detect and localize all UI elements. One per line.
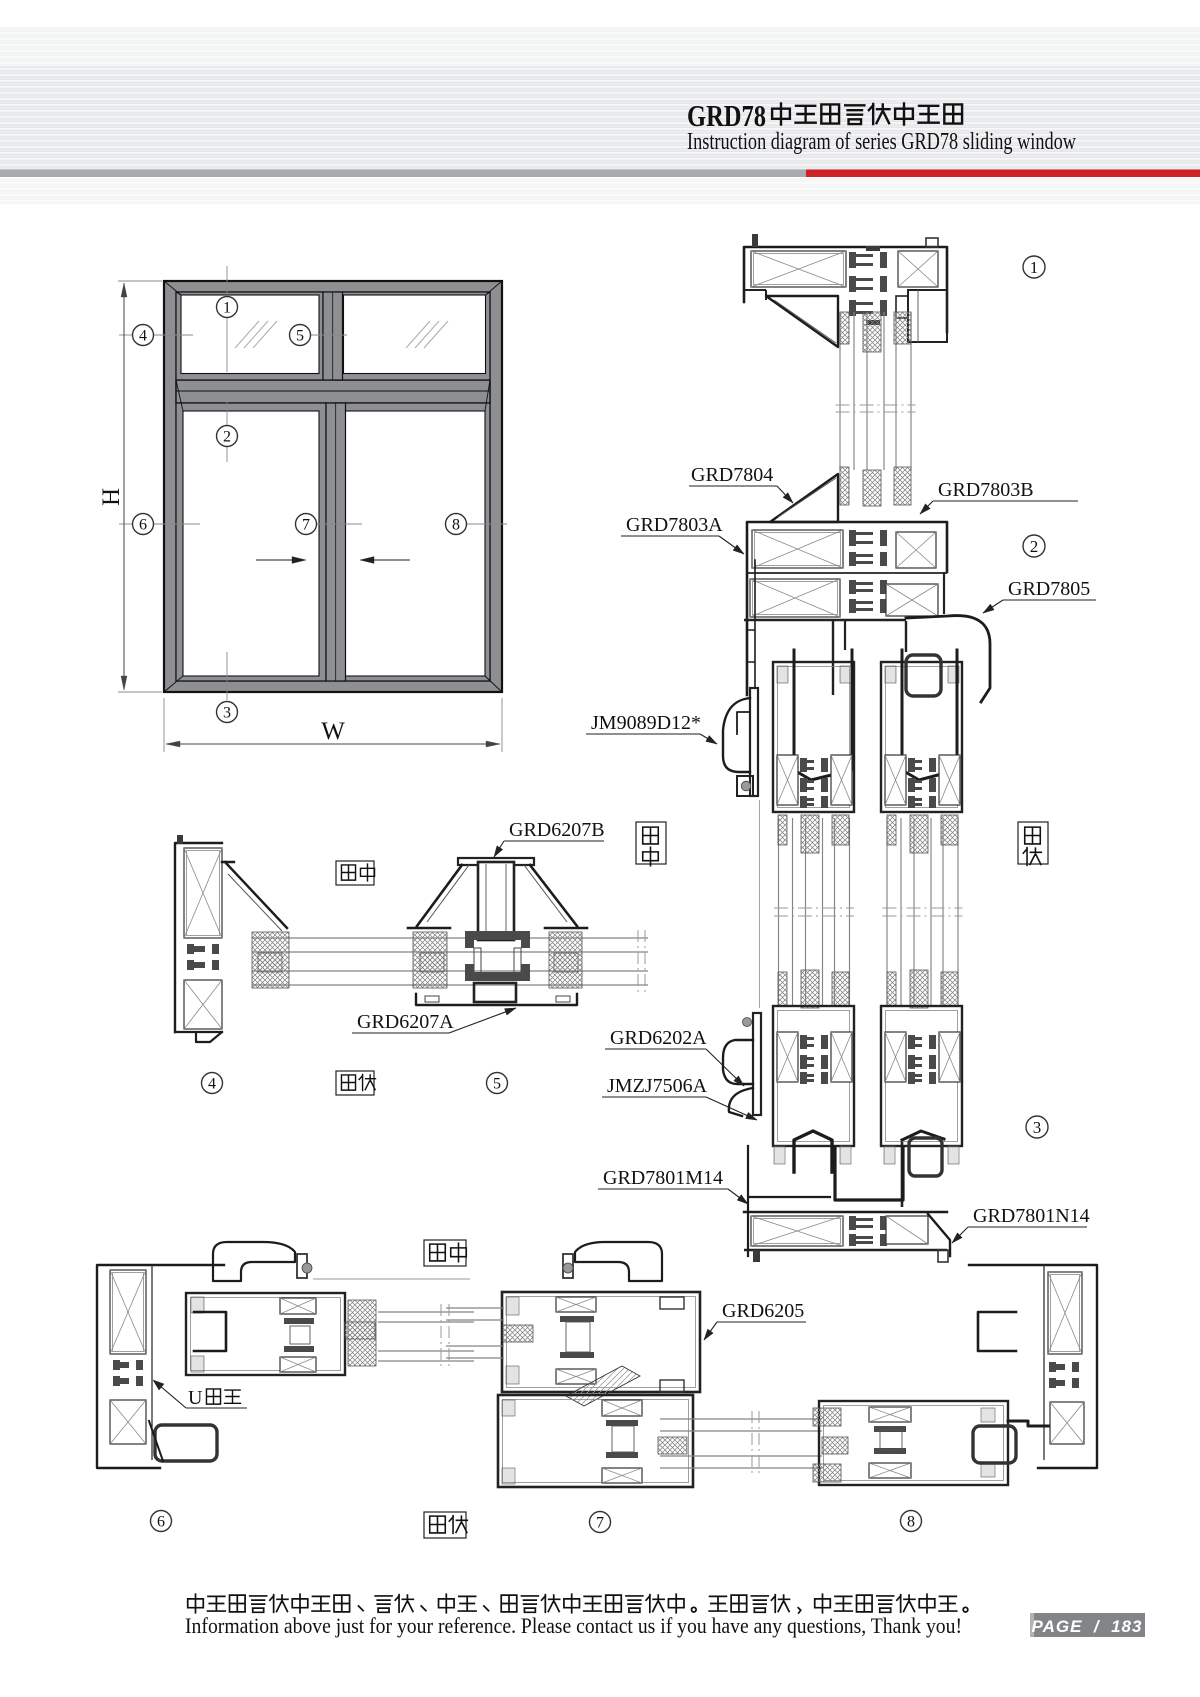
svg-text:8: 8 — [452, 516, 460, 533]
svg-text:5: 5 — [493, 1075, 501, 1092]
svg-text:GRD6207A: GRD6207A — [357, 1011, 454, 1033]
svg-text:GRD7803B: GRD7803B — [938, 479, 1034, 501]
svg-text:1: 1 — [1030, 258, 1039, 277]
svg-text:8: 8 — [907, 1513, 915, 1530]
svg-text:4: 4 — [139, 327, 147, 344]
svg-text:GRD6202A: GRD6202A — [610, 1027, 707, 1049]
svg-text:GRD7801N14: GRD7801N14 — [973, 1205, 1090, 1227]
svg-text:Instruction diagram of series: Instruction diagram of series GRD78 slid… — [687, 129, 1077, 155]
svg-text:H: H — [98, 488, 125, 506]
svg-text:1: 1 — [223, 299, 231, 316]
svg-text:GRD6205: GRD6205 — [722, 1300, 804, 1322]
svg-text:7: 7 — [596, 1514, 604, 1531]
svg-text:GRD6207B: GRD6207B — [509, 819, 605, 841]
svg-text:JMZJ7506A: JMZJ7506A — [607, 1075, 708, 1097]
svg-text:GRD78: GRD78 — [687, 98, 766, 133]
svg-text:6: 6 — [139, 516, 147, 533]
svg-text:5: 5 — [296, 327, 304, 344]
svg-text:GRD7804: GRD7804 — [691, 464, 773, 486]
svg-text:GRD7801M14: GRD7801M14 — [603, 1167, 723, 1189]
svg-text:6: 6 — [157, 1513, 165, 1530]
svg-text:2: 2 — [223, 428, 231, 445]
svg-text:Information above just for you: Information above just for your referenc… — [185, 1613, 962, 1638]
svg-text:PAGE / 183: PAGE / 183 — [1032, 1617, 1143, 1636]
svg-text:GRD7803A: GRD7803A — [626, 514, 723, 536]
svg-text:3: 3 — [1033, 1118, 1042, 1137]
svg-text:JM9089D12*: JM9089D12* — [591, 712, 701, 734]
svg-text:4: 4 — [208, 1075, 216, 1092]
svg-text:7: 7 — [302, 516, 310, 533]
svg-text:GRD7805: GRD7805 — [1008, 578, 1090, 600]
svg-text:2: 2 — [1030, 537, 1039, 556]
svg-text:3: 3 — [223, 704, 231, 721]
svg-text:W: W — [321, 718, 345, 745]
svg-text:U: U — [188, 1387, 203, 1409]
